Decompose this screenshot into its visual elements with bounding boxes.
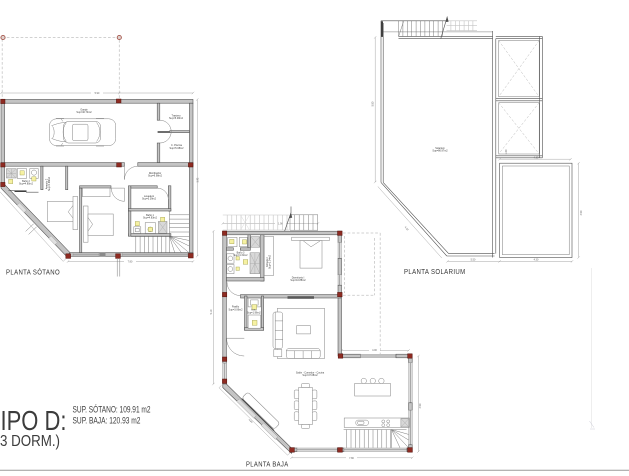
svg-text:SUP. BAJA: 120.93 m2: SUP. BAJA: 120.93 m2 <box>73 416 141 426</box>
svg-text:4.30: 4.30 <box>534 259 539 262</box>
svg-text:Sup=1.04m2: Sup=1.04m2 <box>269 254 272 269</box>
svg-text:Sup=4.83m2: Sup=4.83m2 <box>143 217 158 220</box>
svg-text:4.50: 4.50 <box>419 403 422 408</box>
svg-text:Sup=3.06m2: Sup=3.06m2 <box>229 308 244 311</box>
svg-text:Sup=5.08m2: Sup=5.08m2 <box>170 147 185 150</box>
svg-text:Sup=3.39m2: Sup=3.39m2 <box>142 198 157 201</box>
svg-text:5.90: 5.90 <box>95 92 100 95</box>
svg-text:5.50: 5.50 <box>471 259 476 262</box>
svg-text:5.80: 5.80 <box>372 101 375 106</box>
svg-text:4.00: 4.00 <box>372 349 377 352</box>
svg-text:5.92: 5.92 <box>197 177 200 182</box>
svg-text:Sup=9.98m2: Sup=9.98m2 <box>148 175 163 178</box>
svg-text:Sup=4.31m2: Sup=4.31m2 <box>234 254 249 257</box>
svg-text:3 DORM.): 3 DORM.) <box>0 433 60 450</box>
svg-text:PLANTA SÓTANO: PLANTA SÓTANO <box>6 268 60 277</box>
svg-text:1.00: 1.00 <box>505 149 508 154</box>
svg-text:Sup=0.98m2: Sup=0.98m2 <box>48 176 51 191</box>
svg-text:7.80: 7.80 <box>349 457 354 460</box>
svg-text:SUP. SÓTANO: 109.91 m2: SUP. SÓTANO: 109.91 m2 <box>73 405 151 415</box>
svg-text:IPO D:: IPO D: <box>1 405 67 436</box>
svg-text:PLANTA SOLARIUM: PLANTA SOLARIUM <box>404 267 466 276</box>
svg-text:5.10: 5.10 <box>210 309 213 314</box>
svg-text:Sup=4.80m2: Sup=4.80m2 <box>19 183 34 186</box>
svg-text:Sup=47.08m2: Sup=47.08m2 <box>302 374 318 377</box>
svg-text:Sup=10.88m2: Sup=10.88m2 <box>290 279 306 282</box>
svg-text:4.50: 4.50 <box>580 210 583 215</box>
svg-text:Sup=1.96m2: Sup=1.96m2 <box>247 311 262 314</box>
svg-text:7.80: 7.80 <box>128 261 133 264</box>
svg-text:Sup=5.48m2: Sup=5.48m2 <box>169 117 184 120</box>
svg-text:Sup=86.97m2: Sup=86.97m2 <box>432 150 448 153</box>
svg-text:PLANTA BAJA: PLANTA BAJA <box>246 460 289 469</box>
svg-text:Sup=40.74m2: Sup=40.74m2 <box>76 111 92 114</box>
